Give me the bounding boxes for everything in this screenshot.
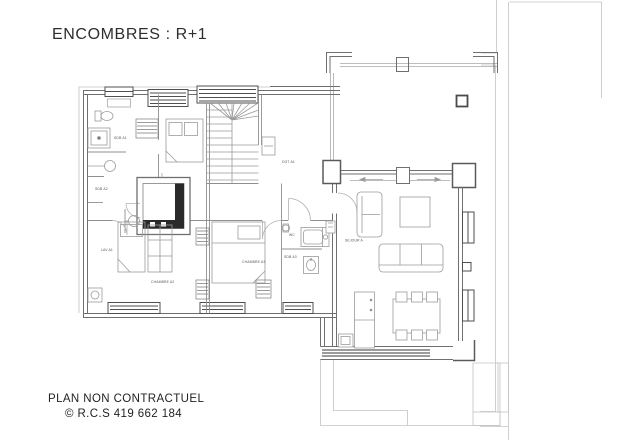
- south-window-1: [108, 303, 160, 314]
- south-window-3: [283, 303, 313, 314]
- kitchen-base-unit: [339, 334, 354, 347]
- north-window-2: [148, 90, 188, 107]
- floor-plan-drawing: SDB A1 SDB A2 LAV A1 DGT A1 CHAMBRE A2 C…: [0, 0, 640, 443]
- shower-tray: [88, 128, 110, 148]
- plan-footer: PLAN NON CONTRACTUEL © R.C.S 419 662 184: [48, 392, 204, 421]
- label-dgt-a1: DGT A1: [282, 160, 295, 164]
- closet-1: [196, 228, 209, 245]
- north-window-1: [105, 87, 133, 107]
- windows: [105, 86, 474, 321]
- kitchen-tall-unit: [355, 292, 375, 348]
- footer-disclaimer: PLAN NON CONTRACTUEL: [48, 392, 204, 407]
- washing-machine: [88, 288, 102, 302]
- loveseat: [357, 192, 382, 237]
- toilet-sdb-a1: [95, 111, 113, 121]
- bed-chambre-a1: [166, 119, 203, 162]
- label-wc: WC: [289, 233, 295, 237]
- label-sdb-a2: SDB A2: [95, 187, 108, 191]
- skylight-square: [457, 96, 468, 107]
- linen-closet: [136, 119, 158, 138]
- washbasin-sdb-a3: [304, 257, 319, 274]
- label-chambre-a3: CHAMBRE A3: [242, 260, 265, 264]
- lower-terrace-outline: [321, 359, 501, 426]
- door-sejour: [338, 193, 357, 212]
- toilet-wc: [282, 224, 290, 232]
- interior-walls: [88, 95, 333, 314]
- room-labels: SDB A1 SDB A2 LAV A1 DGT A1 CHAMBRE A2 C…: [95, 136, 364, 284]
- bed-chambre-a2: [118, 222, 145, 272]
- bed-chambre-a3: [212, 222, 265, 283]
- washbasin-sdb-a2: [88, 161, 116, 172]
- roof-terrace: [327, 53, 498, 171]
- living-room-furniture: [339, 192, 444, 348]
- label-sdb-a3: SDB A3: [284, 255, 297, 259]
- east-window-1: [463, 212, 475, 243]
- closet-2: [196, 280, 209, 299]
- doors: [113, 193, 358, 239]
- footer-copyright: © R.C.S 419 662 184: [48, 407, 204, 422]
- floor-plan-page: ENCOMBRES : R+1: [0, 0, 640, 443]
- door-bathroom: [289, 199, 311, 221]
- coffee-table: [400, 197, 430, 227]
- stairs: [207, 103, 276, 183]
- label-sejour-a: SEJOUR A: [345, 239, 364, 243]
- east-window-2: [463, 263, 472, 272]
- dining-table: [393, 292, 440, 340]
- bedroom-furniture: [118, 119, 271, 299]
- radiator: [326, 221, 335, 233]
- label-sdb-a1: SDB A1: [114, 136, 127, 140]
- label-chambre-a2: CHAMBRE A2: [151, 280, 174, 284]
- bathtub: [301, 228, 329, 247]
- stair-bay-window: [197, 86, 258, 103]
- east-window-3: [463, 290, 475, 321]
- label-lav-a1: LAV A1: [101, 248, 113, 252]
- sofa: [379, 244, 443, 272]
- wardrobe-chambre-a2: [148, 225, 172, 272]
